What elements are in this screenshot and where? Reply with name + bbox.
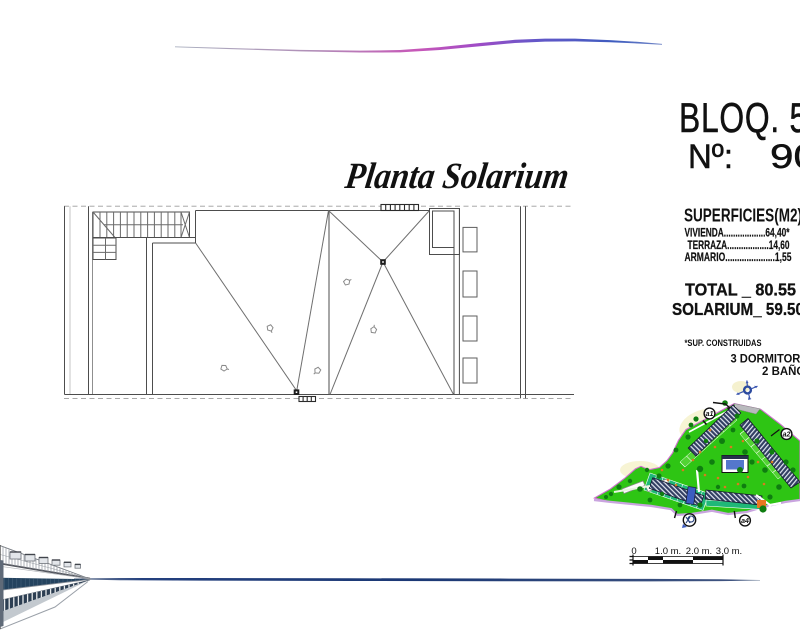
- svg-text:ARMARIO.....................1,: ARMARIO.....................1,55: [685, 252, 792, 264]
- svg-text:90: 90: [770, 138, 800, 176]
- svg-text:*SUP. CONSTRUIDAS: *SUP. CONSTRUIDAS: [685, 338, 762, 348]
- svg-text:a2: a2: [783, 432, 791, 439]
- svg-text:0: 0: [631, 546, 636, 557]
- svg-text:2 BAÑOS: 2 BAÑOS: [762, 363, 800, 378]
- svg-text:VIVIENDA..................64,4: VIVIENDA..................64,40*: [685, 228, 790, 240]
- svg-text:a4: a4: [741, 518, 749, 525]
- svg-text:a1: a1: [706, 411, 714, 418]
- svg-text:BLOQ. 5: BLOQ. 5: [679, 94, 800, 141]
- svg-text:2.0 m.: 2.0 m.: [686, 546, 712, 557]
- svg-text:TERRAZA..................14,60: TERRAZA..................14,60: [688, 240, 790, 252]
- svg-text:1.0 m.: 1.0 m.: [655, 546, 681, 557]
- svg-text:SOLARIUM_ 59.50: SOLARIUM_ 59.50: [672, 299, 800, 319]
- svg-text:Nº:: Nº:: [688, 138, 733, 176]
- svg-text:Planta Solarium: Planta Solarium: [342, 156, 572, 197]
- svg-text:TOTAL _ 80.55: TOTAL _ 80.55: [685, 280, 796, 300]
- svg-text:SUPERFICIES(M2): SUPERFICIES(M2): [684, 206, 800, 226]
- svg-text:3.0 m.: 3.0 m.: [716, 546, 742, 557]
